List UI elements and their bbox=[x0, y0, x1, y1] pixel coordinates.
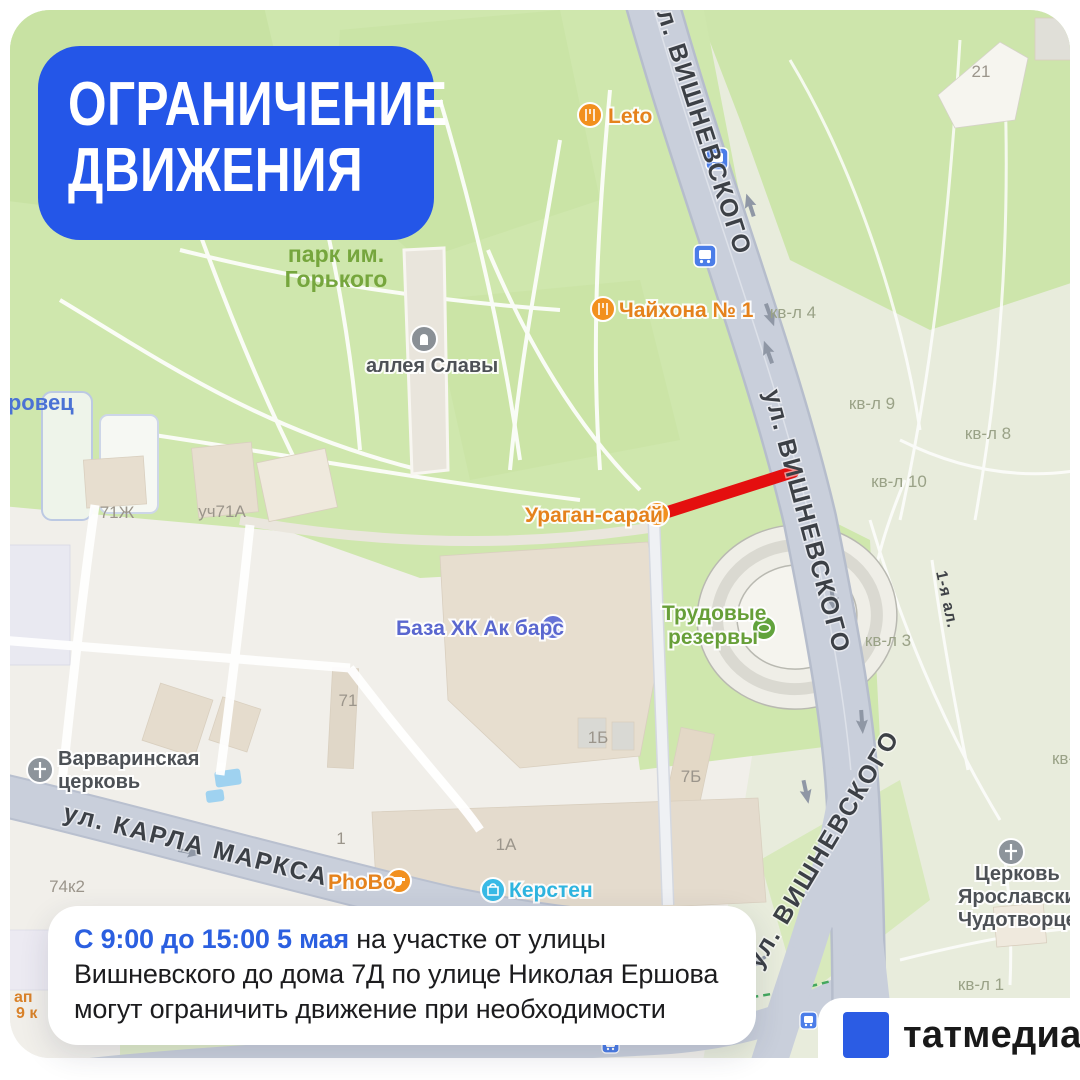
poi-varvara-label-line2: церковь bbox=[58, 771, 140, 793]
label-kvl10: кв-л 10 bbox=[871, 472, 927, 491]
notice-line2: Вишневского до дома 7Д по улице Николая … bbox=[74, 957, 730, 992]
house-71: 71 bbox=[339, 691, 358, 710]
poi-akbars-label: База ХК Ак барс bbox=[396, 617, 564, 640]
poi-phobo[interactable]: PhoBo bbox=[328, 869, 411, 894]
poi-leto-label: Leto bbox=[608, 105, 652, 128]
label-kvl8: кв-л 8 bbox=[965, 424, 1011, 443]
poi-uragan-label: Ураган-сарай bbox=[525, 504, 663, 527]
house-74k2: 74к2 bbox=[49, 877, 85, 896]
label-kvl3: кв-л 3 bbox=[865, 631, 911, 650]
poi-akbars[interactable]: База ХК Ак барс bbox=[396, 615, 565, 640]
notice-highlight: С 9:00 до 15:00 5 мая bbox=[74, 924, 349, 954]
tatmedia-logo-square-icon bbox=[843, 1012, 889, 1058]
house-1a: 1А bbox=[496, 835, 517, 854]
label-kvl1: кв-л 1 bbox=[958, 975, 1004, 994]
poi-kersten-label: Керстен bbox=[509, 879, 593, 902]
park-gorky-label-line1: парк им. bbox=[288, 241, 384, 267]
poi-chaihona-label: Чайхона № 1 bbox=[619, 299, 754, 322]
restaurant-icon bbox=[591, 297, 615, 321]
poster: ул. ВИШНЕВСКОГО ул. ВИШНЕВСКОГО ул. ВИШН… bbox=[0, 0, 1080, 1080]
badge-line2: ДВИЖЕНИЯ bbox=[68, 138, 361, 204]
restriction-badge: ОГРАНИЧЕНИЕ ДВИЖЕНИЯ bbox=[38, 46, 434, 240]
poi-phobo-label: PhoBo bbox=[328, 871, 396, 894]
building-1b2 bbox=[612, 722, 634, 750]
label-kv-edge: кв-л bbox=[1052, 749, 1070, 768]
house-21: 21 bbox=[972, 62, 991, 81]
poi-church-yar-label-line3: Чудотворцев bbox=[958, 909, 1070, 931]
house-uch71a: уч71А bbox=[198, 502, 246, 521]
house-71zh: 71Ж bbox=[100, 503, 135, 522]
monument-glyph bbox=[420, 334, 428, 345]
notice-line1-rest: на участке от улицы bbox=[349, 924, 606, 954]
notice-line1: С 9:00 до 15:00 5 мая на участке от улиц… bbox=[74, 922, 730, 957]
poi-leto[interactable]: Leto bbox=[578, 103, 652, 128]
building-71 bbox=[327, 667, 358, 768]
house-1b: 1Б bbox=[588, 728, 609, 747]
poi-uragan[interactable]: Ураган-сарай bbox=[525, 502, 669, 527]
poi-trudovye-label-line1: Трудовые bbox=[662, 602, 766, 625]
building-71zh bbox=[83, 456, 146, 508]
label-partial-left-2: 9 к bbox=[16, 1005, 38, 1022]
shop-icon bbox=[481, 878, 505, 902]
poi-trudovye-label-line2: резервы bbox=[668, 626, 758, 649]
poi-varvara-label-line1: Варваринская bbox=[58, 748, 199, 770]
poi-church-yar-label-line2: Ярославских bbox=[958, 886, 1070, 908]
tatmedia-logo: татмедиа bbox=[843, 1012, 1080, 1058]
tatmedia-logo-text: татмедиа bbox=[903, 1014, 1080, 1057]
notice-line3: могут ограничить движение при необходимо… bbox=[74, 992, 730, 1027]
bus-stop-icon bbox=[694, 245, 716, 267]
label-kvl9: кв-л 9 bbox=[849, 394, 895, 413]
notice-box: С 9:00 до 15:00 5 мая на участке от улиц… bbox=[48, 906, 756, 1045]
poi-alleya-slavy-label: аллея Славы bbox=[366, 355, 498, 377]
label-partial-left-1: ап bbox=[14, 989, 33, 1006]
pond-2 bbox=[205, 789, 224, 803]
building-tr-corner bbox=[1035, 18, 1070, 60]
label-kvl4: кв-л 4 bbox=[770, 303, 816, 322]
house-7b: 7Б bbox=[681, 767, 702, 786]
label-zorovets: зоровец bbox=[10, 390, 74, 415]
badge-line1: ОГРАНИЧЕНИЕ bbox=[68, 72, 361, 138]
poi-church-yar-label-line1: Церковь bbox=[975, 863, 1060, 885]
park-gorky-label-line2: Горького bbox=[285, 266, 388, 292]
bus-stop-icon bbox=[800, 1012, 817, 1029]
poi-kersten[interactable]: Керстен bbox=[481, 878, 593, 902]
house-1: 1 bbox=[336, 829, 345, 848]
restaurant-icon bbox=[578, 103, 602, 127]
